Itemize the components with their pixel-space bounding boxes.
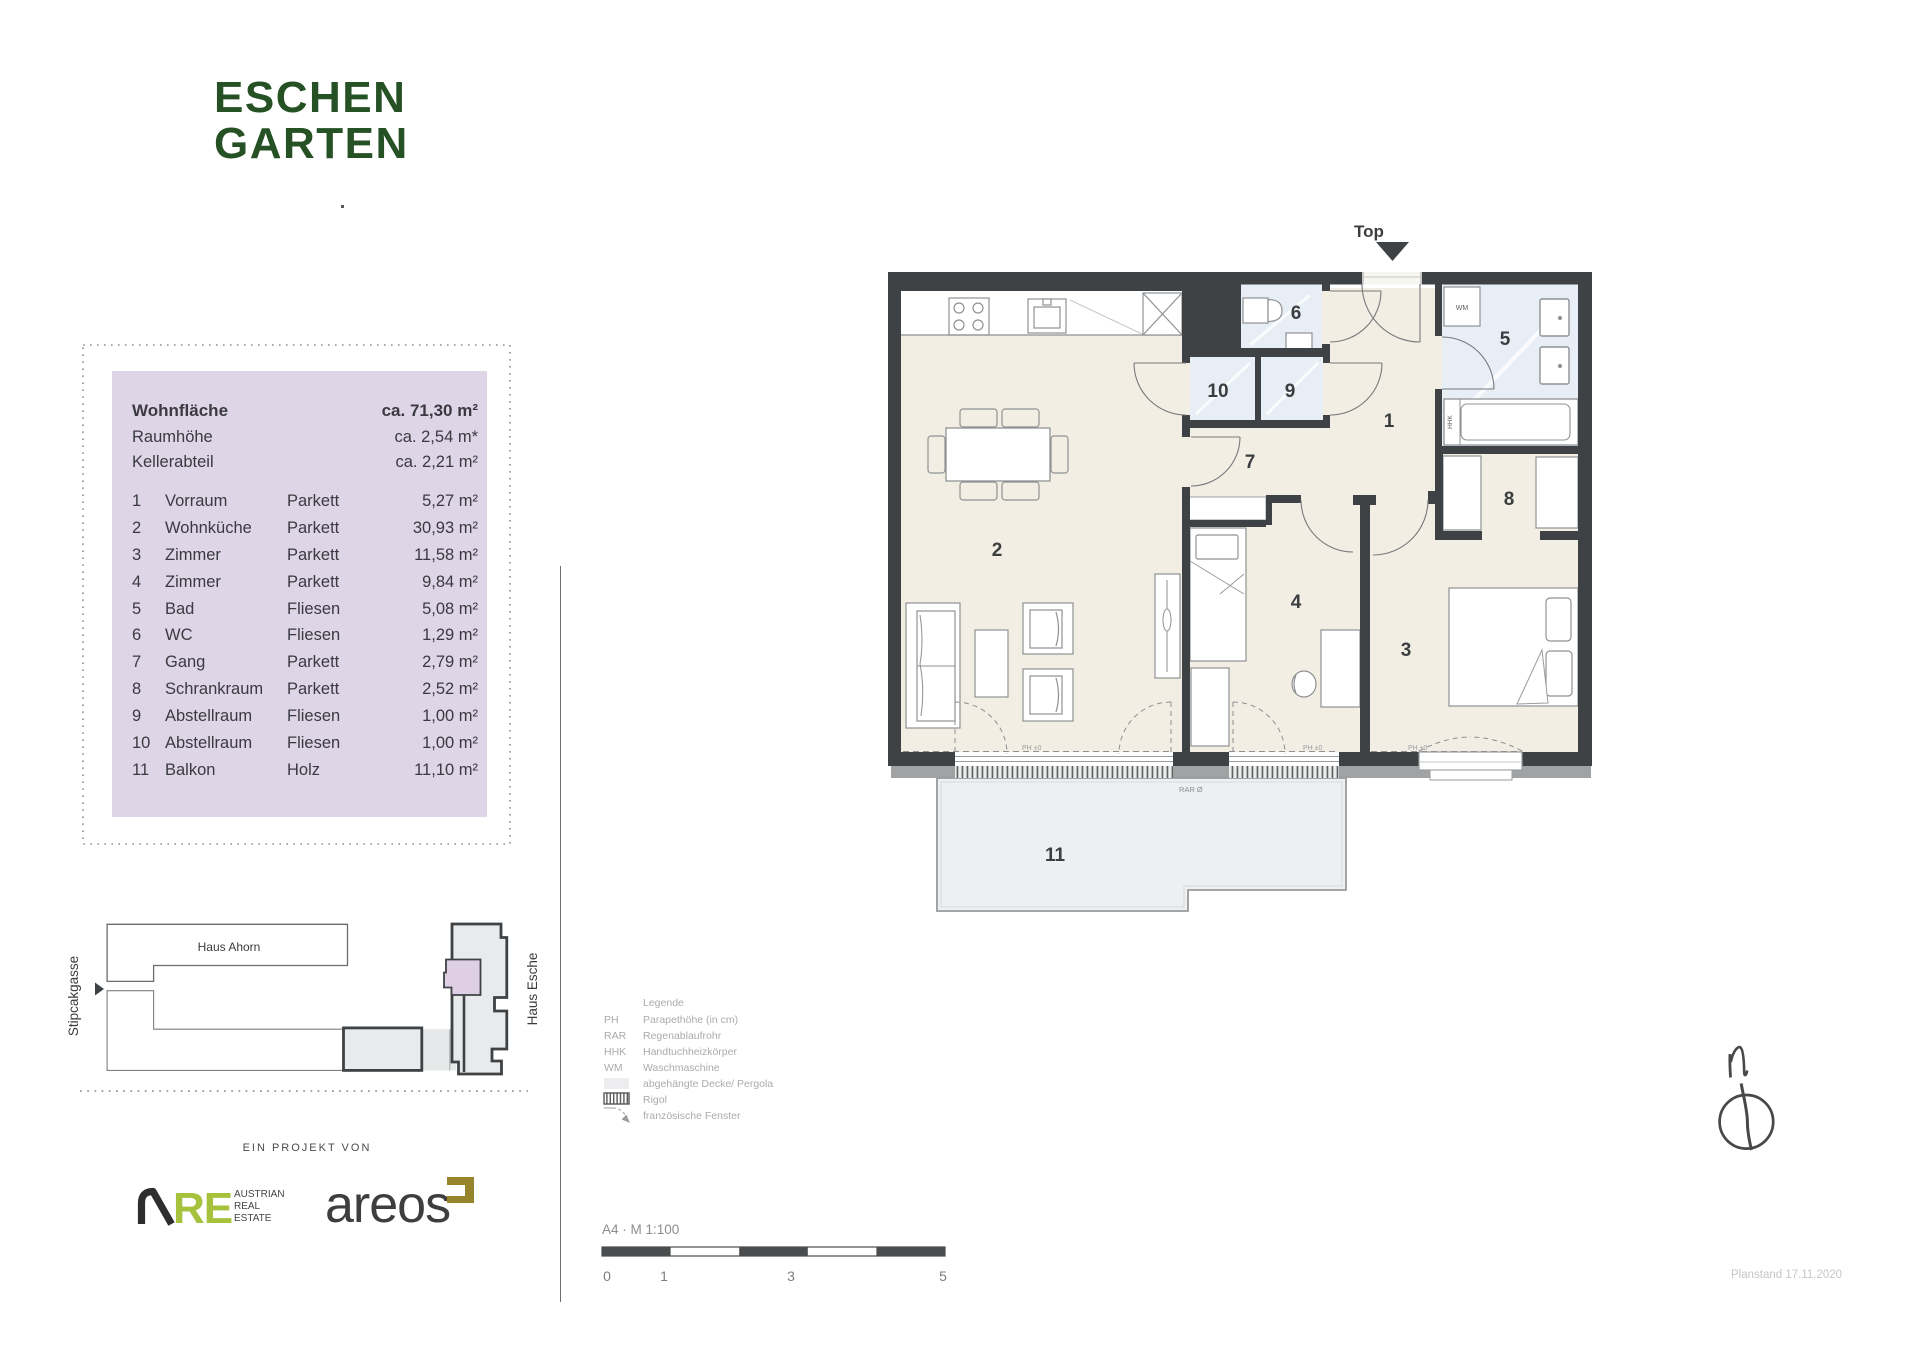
svg-text:ca. 2,21 m²: ca. 2,21 m²: [395, 453, 478, 471]
svg-text:EIN PROJEKT VON: EIN PROJEKT VON: [243, 1142, 372, 1154]
svg-text:1: 1: [132, 492, 141, 510]
svg-text:Regenablaufrohr: Regenablaufrohr: [643, 1030, 722, 1042]
svg-text:11,58 m²: 11,58 m²: [414, 546, 478, 564]
svg-text:6: 6: [1291, 303, 1302, 324]
svg-text:ca. 2,54 m*: ca. 2,54 m*: [395, 428, 479, 446]
svg-text:A4 · M 1:100: A4 · M 1:100: [602, 1222, 679, 1237]
svg-text:Kellerabteil: Kellerabteil: [132, 453, 214, 471]
svg-text:PH: PH: [604, 1014, 619, 1026]
svg-text:11: 11: [132, 761, 149, 779]
svg-text:10: 10: [132, 734, 150, 752]
svg-text:Zimmer: Zimmer: [165, 546, 221, 564]
svg-text:Haus Esche: Haus Esche: [525, 953, 540, 1026]
svg-text:ESCHEN: ESCHEN: [214, 73, 406, 122]
svg-text:RAR: RAR: [604, 1030, 627, 1042]
svg-text:Fliesen: Fliesen: [287, 734, 340, 752]
svg-text:30,93 m²: 30,93 m²: [413, 519, 479, 537]
svg-text:2,52 m²: 2,52 m²: [422, 680, 478, 698]
svg-text:Abstellraum: Abstellraum: [165, 734, 252, 752]
svg-text:Balkon: Balkon: [165, 761, 215, 779]
svg-text:8: 8: [132, 680, 141, 698]
svg-text:RAR Ø: RAR Ø: [1179, 785, 1203, 794]
svg-text:Parapethöhe (in cm): Parapethöhe (in cm): [643, 1014, 738, 1026]
svg-text:AUSTRIAN: AUSTRIAN: [234, 1189, 285, 1200]
svg-text:Wohnküche: Wohnküche: [165, 519, 252, 537]
svg-text:Abstellraum: Abstellraum: [165, 707, 252, 725]
svg-text:ca. 71,30 m²: ca. 71,30 m²: [382, 401, 479, 420]
svg-text:PH ±0: PH ±0: [1022, 745, 1042, 752]
svg-text:GARTEN: GARTEN: [214, 119, 409, 168]
svg-text:Rigol: Rigol: [643, 1094, 667, 1106]
svg-text:Wohnfläche: Wohnfläche: [132, 401, 228, 420]
svg-text:11: 11: [1045, 845, 1066, 866]
svg-text:11,10 m²: 11,10 m²: [414, 761, 478, 779]
svg-text:3: 3: [132, 546, 141, 564]
svg-text:Legende: Legende: [643, 997, 684, 1009]
svg-text:WM: WM: [604, 1062, 623, 1074]
svg-text:5: 5: [132, 600, 141, 618]
svg-text:REAL: REAL: [234, 1201, 261, 1212]
svg-text:7: 7: [1245, 452, 1256, 473]
svg-text:Holz: Holz: [287, 761, 320, 779]
svg-text:1,00 m²: 1,00 m²: [422, 707, 478, 725]
svg-text:9: 9: [132, 707, 141, 725]
svg-text:HHK: HHK: [604, 1046, 626, 1058]
svg-text:Stipcakgasse: Stipcakgasse: [66, 956, 81, 1036]
svg-text:Parkett: Parkett: [287, 492, 340, 510]
svg-text:2: 2: [132, 519, 141, 537]
svg-text:Gang: Gang: [165, 653, 205, 671]
svg-text:areos: areos: [325, 1176, 450, 1234]
svg-text:HHK: HHK: [1447, 414, 1454, 428]
svg-text:Zimmer: Zimmer: [165, 573, 221, 591]
svg-text:9,84 m²: 9,84 m²: [422, 573, 478, 591]
svg-text:französische Fenster: französische Fenster: [643, 1110, 741, 1122]
svg-text:PH ±0: PH ±0: [1303, 745, 1323, 752]
svg-text:9: 9: [1285, 381, 1296, 402]
svg-text:0: 0: [603, 1268, 611, 1284]
svg-text:4: 4: [132, 573, 141, 591]
svg-text:Schrankraum: Schrankraum: [165, 680, 263, 698]
svg-text:1: 1: [660, 1268, 668, 1284]
svg-text:Haus Ahorn: Haus Ahorn: [198, 940, 261, 954]
svg-text:Parkett: Parkett: [287, 519, 340, 537]
svg-text:8: 8: [1504, 489, 1515, 510]
svg-text:abgehängte Decke/ Pergola: abgehängte Decke/ Pergola: [643, 1078, 773, 1090]
svg-text:1,00 m²: 1,00 m²: [422, 734, 478, 752]
svg-text:5: 5: [939, 1268, 947, 1284]
svg-text:5: 5: [1500, 329, 1511, 350]
svg-text:1,29 m²: 1,29 m²: [422, 626, 478, 644]
svg-text:RE: RE: [173, 1184, 232, 1233]
svg-text:6: 6: [132, 626, 141, 644]
svg-text:ESTATE: ESTATE: [234, 1213, 272, 1224]
svg-text:Top: Top: [1354, 222, 1384, 241]
svg-text:Raumhöhe: Raumhöhe: [132, 428, 213, 446]
svg-text:2,79 m²: 2,79 m²: [422, 653, 478, 671]
svg-text:Parkett: Parkett: [287, 546, 340, 564]
svg-text:2: 2: [992, 540, 1003, 561]
svg-text:WM: WM: [1456, 305, 1469, 312]
svg-text:4: 4: [1291, 592, 1302, 613]
svg-text:Vorraum: Vorraum: [165, 492, 227, 510]
svg-text:7: 7: [132, 653, 141, 671]
svg-text:5,27 m²: 5,27 m²: [422, 492, 478, 510]
svg-text:Fliesen: Fliesen: [287, 626, 340, 644]
svg-text:Parkett: Parkett: [287, 680, 340, 698]
svg-text:Parkett: Parkett: [287, 573, 340, 591]
svg-text:1: 1: [1384, 411, 1395, 432]
svg-text:Waschmaschine: Waschmaschine: [643, 1062, 720, 1074]
svg-text:Handtuchheizkörper: Handtuchheizkörper: [643, 1046, 737, 1058]
svg-text:10: 10: [1207, 381, 1228, 402]
svg-text:Parkett: Parkett: [287, 653, 340, 671]
svg-text:Fliesen: Fliesen: [287, 600, 340, 618]
svg-text:Planstand 17.11.2020: Planstand 17.11.2020: [1731, 1269, 1842, 1281]
svg-text:3: 3: [787, 1268, 795, 1284]
svg-text:3: 3: [1401, 640, 1412, 661]
svg-text:Bad: Bad: [165, 600, 194, 618]
svg-text:PH ±0: PH ±0: [1408, 745, 1428, 752]
svg-text:5,08 m²: 5,08 m²: [422, 600, 478, 618]
svg-text:Fliesen: Fliesen: [287, 707, 340, 725]
svg-text:WC: WC: [165, 626, 193, 644]
